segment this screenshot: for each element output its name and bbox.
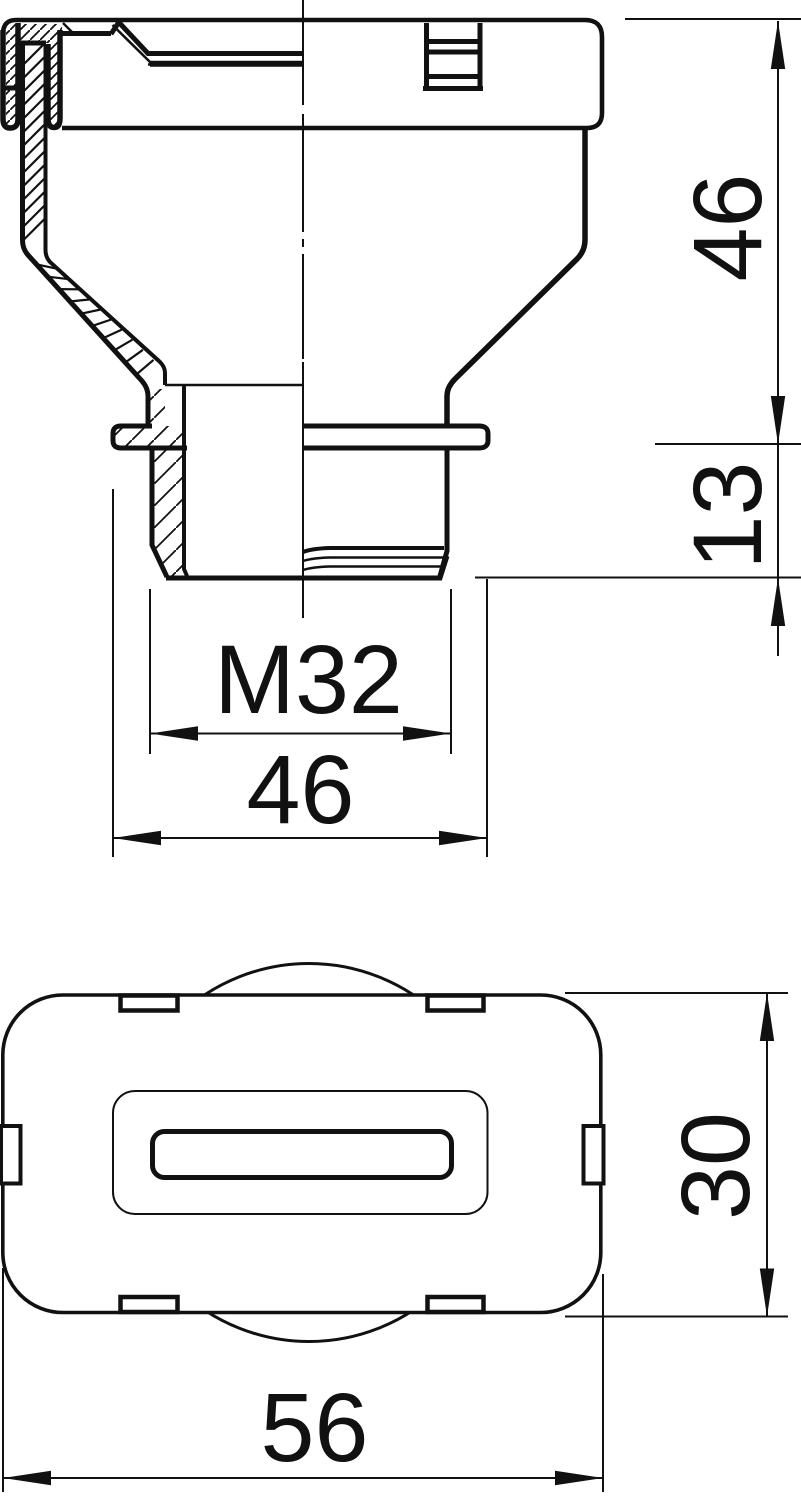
- svg-text:13: 13: [673, 462, 782, 570]
- svg-text:46: 46: [247, 735, 355, 844]
- svg-text:M32: M32: [214, 625, 403, 734]
- svg-text:46: 46: [673, 174, 782, 282]
- svg-text:30: 30: [661, 1112, 770, 1220]
- svg-text:56: 56: [261, 1373, 369, 1482]
